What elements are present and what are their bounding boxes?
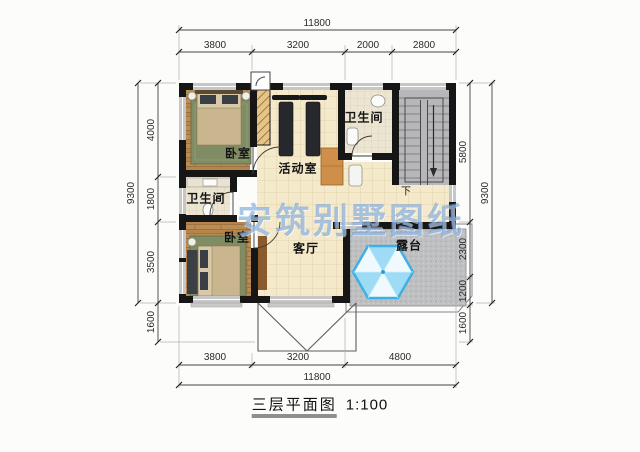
chimney-symbol	[251, 72, 270, 90]
room-label-bedroom-top: 卧室	[225, 145, 251, 162]
dim-bottom-total: 11800	[303, 373, 330, 383]
staircase	[399, 90, 449, 185]
dim-bottom-seg: 3800	[204, 353, 226, 363]
dim-top-total: 11800	[303, 19, 330, 29]
dim-left-seg: 1800	[147, 188, 157, 210]
room-label-bathroom-mid: 卫生间	[186, 190, 225, 207]
roof-outline	[258, 303, 356, 351]
floor-plan-page: 卧室 活动室 卫生间 卫生间 卧室 客厅 露台 下 11800 3800 320…	[0, 0, 640, 452]
sink	[371, 95, 385, 107]
window-sill	[268, 303, 334, 307]
dim-right-seg: 1600	[459, 312, 469, 334]
dim-right-seg: 1200	[459, 280, 469, 302]
caption-title: 三层平面图	[252, 397, 337, 418]
pillow	[200, 272, 208, 290]
pillow	[200, 95, 216, 104]
pillow	[200, 250, 208, 268]
window-sill	[191, 303, 242, 307]
nightstand	[188, 92, 196, 100]
watermark-text: 安筑别墅图纸	[237, 203, 465, 242]
pillow	[222, 95, 238, 104]
dim-left-seg: 4000	[147, 119, 157, 141]
washbasin	[349, 165, 362, 186]
toilet	[347, 128, 358, 145]
duct-shaft	[256, 90, 270, 145]
room-label-living: 客厅	[293, 240, 319, 257]
dim-right-seg: 5800	[459, 141, 469, 163]
room-label-bathroom-top: 卫生间	[344, 109, 383, 126]
dim-right-total: 9300	[481, 182, 491, 204]
dim-left-below: 1600	[147, 311, 157, 333]
caption-scale: 1:100	[346, 397, 389, 414]
sink	[203, 179, 217, 186]
dim-top-seg: 3200	[287, 41, 309, 51]
dim-bottom-seg: 4800	[389, 353, 411, 363]
media-console	[258, 236, 267, 290]
dim-top-seg: 2800	[413, 41, 435, 51]
drawing-caption: 三层平面图1:100	[252, 394, 389, 415]
stair-down-label: 下	[401, 183, 411, 198]
tv-cabinet	[187, 250, 198, 294]
nightstand	[242, 92, 250, 100]
dim-top-seg: 2000	[357, 41, 379, 51]
dim-left-seg: 3500	[147, 251, 157, 273]
dim-bottom-seg: 3200	[287, 353, 309, 363]
nightstand	[188, 238, 196, 246]
dim-left-total: 9300	[127, 182, 137, 204]
dim-top-seg: 3800	[204, 41, 226, 51]
room-label-activity: 活动室	[278, 160, 317, 177]
